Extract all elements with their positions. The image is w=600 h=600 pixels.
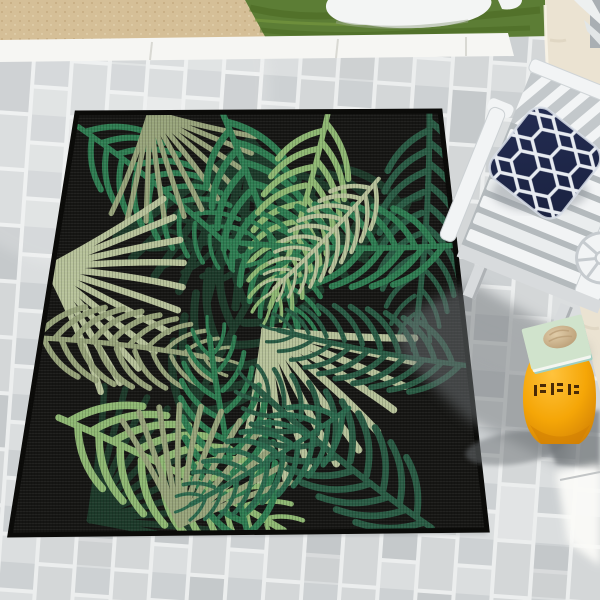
patio-scene [0, 0, 600, 600]
scene-canvas [0, 0, 600, 600]
sand-path-texture [0, 0, 270, 42]
